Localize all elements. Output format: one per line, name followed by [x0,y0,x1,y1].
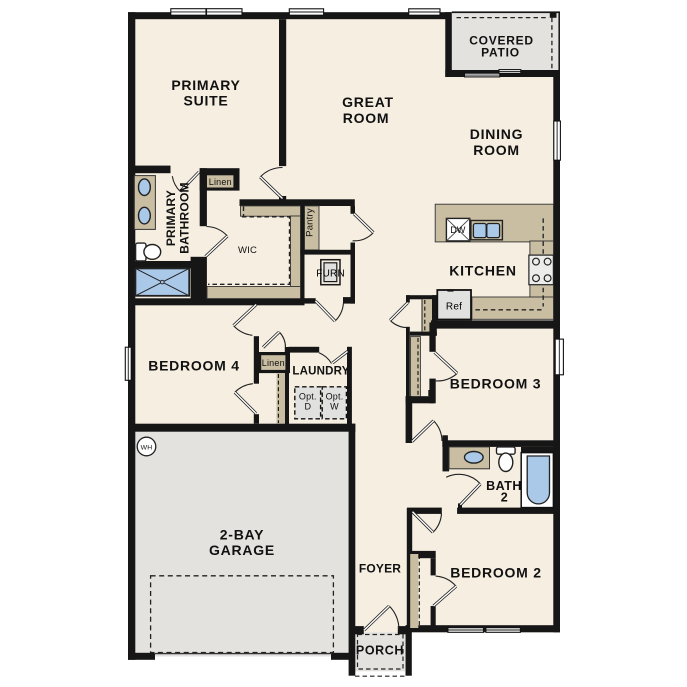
svg-text:LAUNDRY: LAUNDRY [292,366,349,378]
svg-text:Opt.: Opt. [326,392,344,402]
svg-text:PATIO: PATIO [481,46,520,60]
svg-text:D: D [304,402,311,412]
svg-text:DW: DW [450,225,466,235]
svg-text:PRIMARY: PRIMARY [171,77,240,93]
svg-text:FURN: FURN [316,269,345,280]
svg-text:Pantry: Pantry [305,208,316,237]
svg-text:GREAT: GREAT [342,94,394,110]
svg-text:WIC: WIC [238,245,257,256]
svg-text:KITCHEN: KITCHEN [449,263,516,279]
svg-text:Linen: Linen [262,358,285,368]
svg-text:Ref: Ref [446,302,462,313]
svg-text:Linen: Linen [209,177,232,187]
svg-text:BATHROOM: BATHROOM [178,182,192,253]
svg-text:GARAGE: GARAGE [209,542,275,558]
svg-text:DINING: DINING [470,126,524,142]
svg-text:BEDROOM 3: BEDROOM 3 [450,376,542,392]
svg-text:PORCH: PORCH [356,644,404,658]
svg-text:FOYER: FOYER [359,562,401,576]
svg-text:BEDROOM 2: BEDROOM 2 [450,565,542,581]
svg-text:WH: WH [141,445,153,452]
svg-text:2-BAY: 2-BAY [220,527,264,543]
svg-text:2: 2 [501,491,508,505]
svg-text:ROOM: ROOM [473,142,520,158]
svg-text:SUITE: SUITE [184,93,229,109]
svg-text:Opt.: Opt. [299,392,317,402]
svg-text:PRIMARY: PRIMARY [164,190,178,246]
svg-text:BEDROOM 4: BEDROOM 4 [148,358,240,374]
svg-text:W: W [330,402,339,412]
svg-text:ROOM: ROOM [343,110,390,126]
